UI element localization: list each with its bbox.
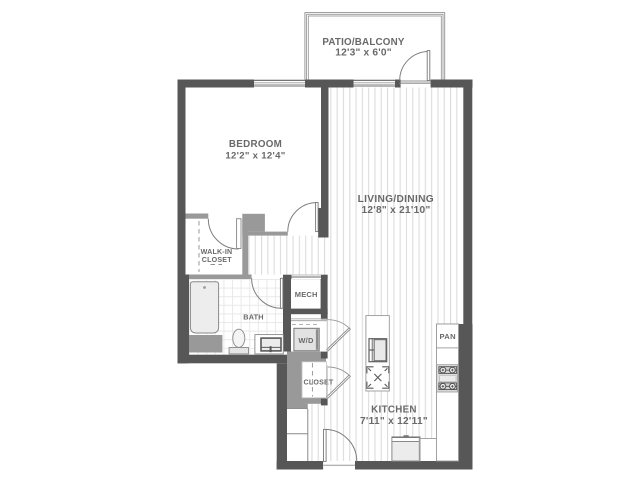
svg-text:PAN: PAN	[440, 332, 456, 341]
svg-text:PATIO/BALCONY: PATIO/BALCONY	[322, 37, 405, 48]
svg-text:W/D: W/D	[298, 336, 314, 345]
svg-text:KITCHEN: KITCHEN	[371, 404, 417, 415]
svg-text:MECH: MECH	[295, 290, 318, 299]
svg-text:BATH: BATH	[243, 313, 264, 322]
svg-text:CLOSET: CLOSET	[202, 256, 232, 264]
svg-text:BEDROOM: BEDROOM	[229, 139, 282, 150]
svg-text:12'3" x 6'0": 12'3" x 6'0"	[335, 48, 392, 59]
svg-text:LIVING/DINING: LIVING/DINING	[358, 194, 434, 205]
svg-text:CLOSET: CLOSET	[304, 379, 334, 387]
svg-text:7'11" x 12'11": 7'11" x 12'11"	[360, 416, 428, 427]
svg-text:12'8" x 21'10": 12'8" x 21'10"	[361, 205, 430, 216]
svg-text:12'2" x 12'4": 12'2" x 12'4"	[225, 151, 285, 162]
